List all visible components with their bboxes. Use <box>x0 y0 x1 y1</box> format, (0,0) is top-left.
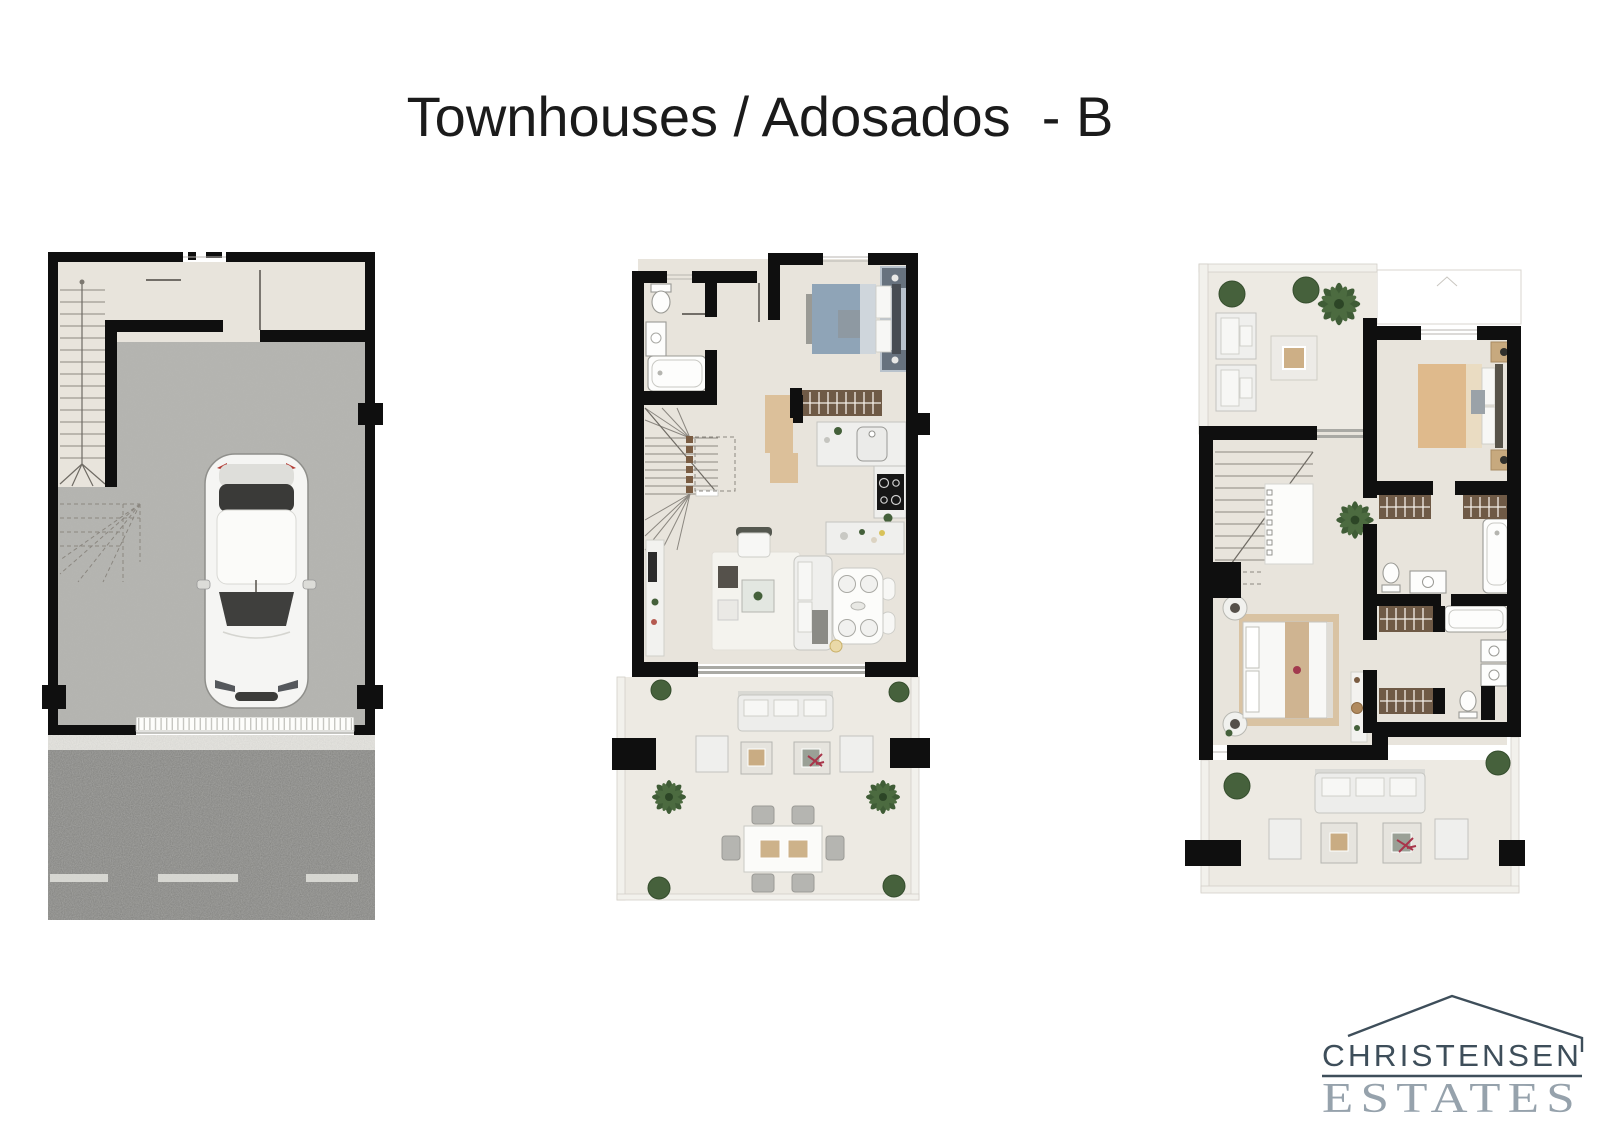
logo-tagline: ESTATES <box>1322 1076 1582 1122</box>
wardrobe <box>1379 495 1431 519</box>
armchair <box>738 533 770 557</box>
roof-outline <box>1377 270 1521 324</box>
outdoor-armchair <box>840 736 873 772</box>
wardrobe <box>802 390 882 416</box>
car-icon <box>197 454 316 708</box>
bathtub <box>648 356 706 391</box>
logo-name: CHRISTENSEN <box>1322 1038 1582 1073</box>
outdoor-armchair <box>1269 819 1301 859</box>
toilet <box>1383 563 1399 583</box>
double-bed <box>1243 622 1333 718</box>
outdoor-armchair <box>696 736 728 772</box>
floor-plan-brochure-page: Townhouses / Adosados - B <box>0 0 1600 1131</box>
tv <box>648 552 657 582</box>
toilet-2 <box>1460 691 1476 711</box>
garage-door <box>136 717 354 733</box>
outdoor-sofa <box>1315 769 1425 813</box>
sofa <box>794 556 832 650</box>
main-living-floor-plan <box>612 250 930 912</box>
lane-marking <box>50 874 358 882</box>
wardrobe <box>1463 495 1507 519</box>
cooktop <box>877 474 904 510</box>
upper-bedrooms-floor-plan <box>1185 256 1525 908</box>
wardrobe <box>1379 688 1433 714</box>
kitchen-island <box>826 522 904 554</box>
street <box>48 735 375 920</box>
sliding-door <box>698 666 865 674</box>
wardrobe <box>1379 606 1433 632</box>
rear-terrace <box>1201 737 1519 893</box>
page-title: Townhouses / Adosados - B <box>140 84 1380 149</box>
outdoor-armchair <box>1435 819 1468 859</box>
outdoor-sofa <box>738 691 833 731</box>
christensen-estates-logo: CHRISTENSEN ESTATES <box>1318 986 1586 1118</box>
basement-garage-floor-plan <box>42 252 383 922</box>
